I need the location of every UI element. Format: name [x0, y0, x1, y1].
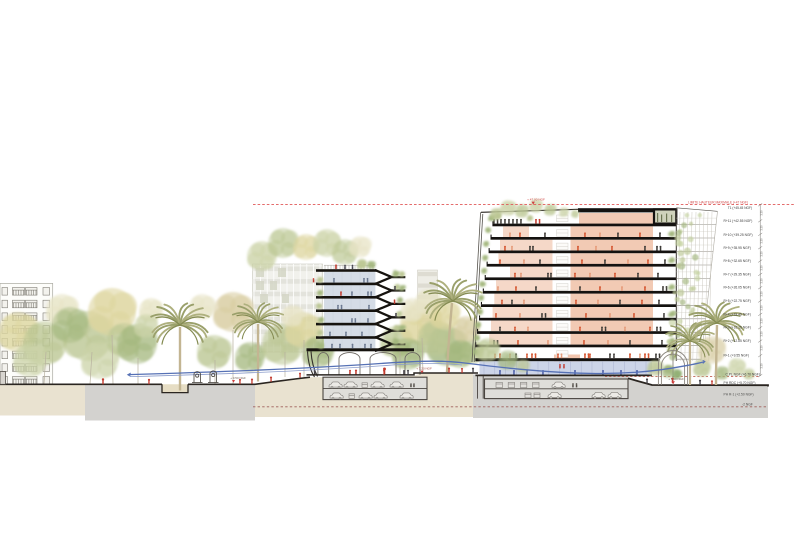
- svg-text:3.30: 3.30: [760, 345, 764, 351]
- svg-text:LIMITE HAUTEUR MAXIMALE (+47 N: LIMITE HAUTEUR MAXIMALE (+47 NGF): [688, 200, 748, 204]
- svg-text:R+9 (+35.95 NGF): R+9 (+35.95 NGF): [724, 246, 751, 250]
- svg-text:R+2 (+12.85 NGF): R+2 (+12.85 NGF): [724, 339, 751, 343]
- svg-text:3.30: 3.30: [760, 331, 764, 337]
- svg-text:3.30: 3.30: [760, 305, 764, 311]
- svg-text:3.30: 3.30: [760, 265, 764, 271]
- svg-text:+ 0.50 NGF: + 0.50 NGF: [230, 376, 246, 380]
- svg-text:3.30: 3.30: [760, 278, 764, 284]
- svg-text:3.30: 3.30: [760, 251, 764, 257]
- svg-text:+ 47.00 NGF: + 47.00 NGF: [527, 198, 545, 202]
- svg-text:3.30: 3.30: [760, 318, 764, 324]
- svg-text:3.30: 3.30: [760, 238, 764, 244]
- svg-text:R+7 (+29.35 NGF): R+7 (+29.35 NGF): [724, 272, 751, 276]
- svg-text:3.30: 3.30: [760, 225, 764, 231]
- svg-text:+ 5.90 NGF: + 5.90 NGF: [668, 377, 684, 381]
- svg-text:R+11 (+42.55 NGF): R+11 (+42.55 NGF): [724, 219, 753, 223]
- svg-text:R+10 (+39.25 NGF): R+10 (+39.25 NGF): [724, 233, 753, 237]
- svg-text:3.30: 3.30: [760, 210, 764, 216]
- svg-text:3.30: 3.30: [760, 363, 764, 369]
- svg-text:R+8 (+32.65 NGF): R+8 (+32.65 NGF): [724, 259, 751, 263]
- svg-text:3.30: 3.30: [760, 291, 764, 297]
- svg-text:R+4 (+19.45 NGF): R+4 (+19.45 NGF): [724, 312, 751, 316]
- svg-text:T1 (+45.45 NGF): T1 (+45.45 NGF): [728, 206, 752, 210]
- svg-text:+ 7.20 NGF: + 7.20 NGF: [416, 367, 432, 371]
- svg-text:-2 NGF: -2 NGF: [742, 403, 753, 407]
- svg-text:PH R-1 (+2.50 NGF): PH R-1 (+2.50 NGF): [724, 393, 754, 397]
- svg-text:C.PL NGF (+6.70 NGF): C.PL NGF (+6.70 NGF): [726, 372, 760, 376]
- svg-text:R+6 (+26.05 NGF): R+6 (+26.05 NGF): [724, 286, 751, 290]
- svg-text:R+5 (+22.75 NGF): R+5 (+22.75 NGF): [724, 299, 751, 303]
- svg-text:R+1 (+9.55 NGF): R+1 (+9.55 NGF): [724, 354, 749, 358]
- svg-text:PH RDC (+5.70 NGF): PH RDC (+5.70 NGF): [724, 381, 756, 385]
- svg-text:R+3 (+16.15 NGF): R+3 (+16.15 NGF): [724, 326, 751, 330]
